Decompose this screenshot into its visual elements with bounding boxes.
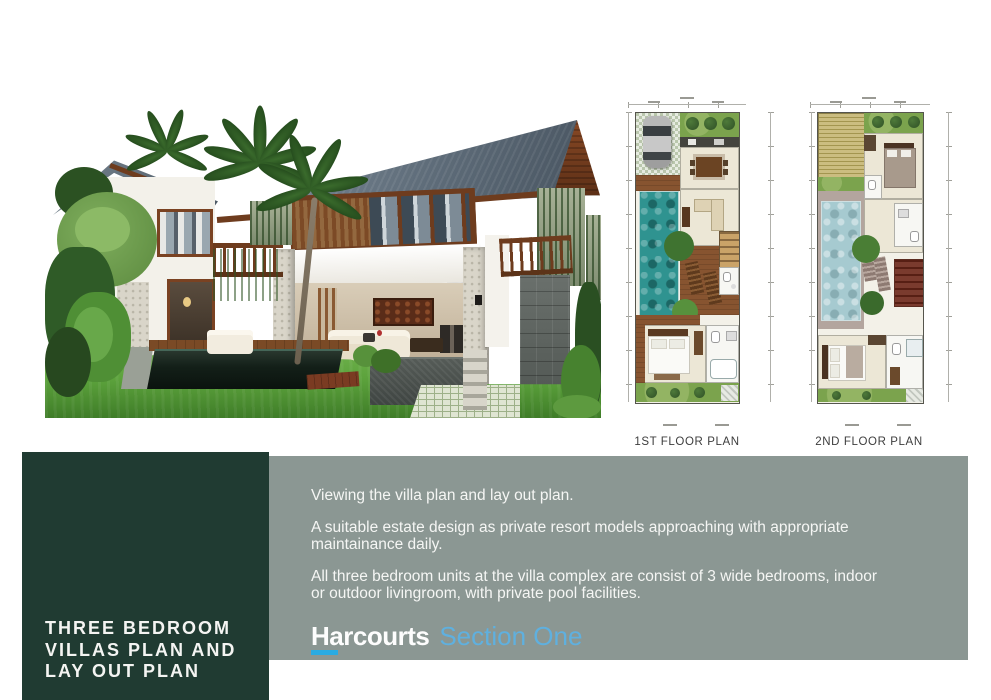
balcony-vines: [213, 249, 283, 301]
plan2-right-dimension-line: [946, 112, 952, 402]
logo-brand-text: Harcourts: [311, 621, 429, 651]
pillow: [830, 364, 840, 378]
bedroom: [636, 325, 706, 383]
dimension-text: [894, 101, 906, 103]
white-wall-band: [284, 244, 480, 289]
slide-title: THREE BEDROOM VILLAS PLAN AND LAY OUT PL…: [45, 618, 236, 683]
blanket: [846, 346, 863, 378]
dimension-text: [715, 424, 729, 426]
garden-strip: [818, 177, 864, 191]
deck: [636, 315, 700, 325]
bush: [832, 391, 841, 400]
bathroom: [719, 267, 739, 295]
right-leaves: [553, 395, 601, 418]
dimension-text: [830, 101, 842, 103]
bathroom: [864, 175, 882, 199]
dimension-text: [712, 101, 724, 103]
potted-palm: [860, 291, 884, 315]
chair: [690, 169, 695, 175]
toilet: [868, 180, 876, 190]
frangipani-highlight: [75, 207, 130, 252]
garden: [818, 389, 923, 402]
sofa-l: [711, 199, 724, 231]
console-table: [410, 338, 443, 352]
bathroom: [894, 203, 923, 247]
stairs: [894, 259, 924, 307]
dining-room: [680, 147, 739, 189]
title-line: LAY OUT PLAN: [45, 661, 236, 683]
bedroom: [818, 335, 886, 389]
title-panel: THREE BEDROOM VILLAS PLAN AND LAY OUT PL…: [22, 452, 269, 700]
palm-frond: [125, 146, 169, 174]
glass-windows: [369, 193, 471, 245]
bed-headboard: [648, 329, 688, 336]
plan2-top-dimension-line: [810, 102, 930, 108]
harcourts-logo: HarcourtsSection One: [311, 623, 582, 654]
accent-pillow: [363, 333, 375, 342]
tree: [908, 116, 920, 128]
left-upper-window: [157, 209, 213, 257]
dimension-text: [663, 424, 677, 426]
wood-floor: [636, 325, 645, 383]
bush: [646, 387, 657, 398]
bathroom: [886, 335, 923, 389]
tree: [890, 116, 902, 128]
bathtub: [710, 359, 737, 379]
chair: [723, 169, 728, 175]
logo-division-text: Section One: [439, 621, 582, 651]
tree: [872, 116, 884, 128]
sink: [731, 284, 736, 289]
first-floor-plan-label: 1ST FLOOR PLAN: [617, 436, 757, 448]
dresser: [694, 331, 703, 355]
garden: [636, 383, 739, 402]
toilet: [910, 231, 919, 242]
garden: [680, 113, 739, 137]
appliance: [688, 139, 696, 145]
door-lamp-glow: [183, 297, 191, 307]
pillow: [669, 339, 685, 349]
bench: [654, 374, 680, 380]
dimension-text: [648, 101, 660, 103]
balcony-right: [499, 235, 573, 277]
logo-underline-bar: [311, 650, 338, 655]
wardrobe: [868, 335, 886, 345]
tree: [722, 117, 735, 130]
bush: [670, 388, 680, 398]
bush: [45, 327, 91, 397]
plan1-right-dimension-line: [768, 112, 774, 402]
lounger: [685, 261, 704, 295]
pool-deck: [636, 175, 680, 191]
description-paragraph: All three bedroom units at the villa com…: [311, 568, 951, 603]
pillow: [901, 150, 911, 157]
potted-palm: [852, 235, 880, 263]
bush: [694, 387, 705, 398]
steps: [463, 350, 487, 410]
dimension-text: [897, 424, 911, 426]
bathroom: [706, 325, 739, 383]
villa-photo: [45, 97, 601, 418]
dimension-text: [680, 97, 694, 99]
shower: [906, 339, 923, 357]
description-paragraph: A suitable estate design as private reso…: [311, 519, 951, 554]
kitchen-counter: [680, 137, 739, 147]
appliance: [714, 139, 724, 145]
tree: [686, 117, 699, 130]
title-line: THREE BEDROOM: [45, 618, 236, 640]
first-floor-plan: [635, 112, 740, 404]
pillow: [887, 150, 897, 157]
dimension-text: [862, 97, 876, 99]
paving-hatch: [721, 385, 738, 401]
roof-deck: [818, 113, 866, 179]
daybed: [207, 330, 253, 354]
tree: [704, 117, 717, 130]
paving-hatch: [906, 389, 923, 402]
planter-bush: [371, 349, 401, 373]
palm-frond: [165, 146, 209, 174]
chair: [690, 160, 695, 166]
dining-table: [696, 157, 722, 177]
pillow: [651, 339, 667, 349]
lounger: [873, 256, 891, 292]
potted-palm: [664, 231, 694, 261]
wall-art-panel: [373, 298, 434, 326]
plan1-left-dimension-line: [626, 112, 632, 402]
bush: [862, 391, 871, 400]
sink: [898, 209, 909, 218]
wardrobe: [864, 135, 876, 151]
plan2-left-dimension-line: [809, 112, 815, 402]
dimension-text: [845, 424, 859, 426]
plan1-top-dimension-line: [628, 102, 746, 108]
garden: [864, 113, 923, 133]
slide: 1ST FLOOR PLAN: [0, 0, 991, 700]
sink-counter: [890, 367, 900, 385]
chair: [723, 160, 728, 166]
description-paragraph: Viewing the villa plan and lay out plan.: [311, 487, 951, 505]
car: [643, 116, 671, 168]
second-floor-plan: [817, 112, 924, 404]
second-floor-plan-label: 2ND FLOOR PLAN: [799, 436, 939, 448]
pool-void: [821, 201, 861, 321]
pillar-sconce: [475, 295, 482, 305]
description-panel: Viewing the villa plan and lay out plan.…: [269, 456, 968, 660]
sink: [726, 331, 737, 341]
pillow: [830, 348, 840, 362]
flower-vase: [377, 330, 382, 336]
stairs: [719, 231, 740, 269]
toilet: [892, 343, 901, 355]
description-text: Viewing the villa plan and lay out plan.…: [311, 487, 951, 617]
toilet: [711, 331, 720, 343]
toilet: [723, 272, 731, 282]
title-line: VILLAS PLAN AND: [45, 640, 236, 662]
tv-cabinet: [682, 207, 690, 227]
